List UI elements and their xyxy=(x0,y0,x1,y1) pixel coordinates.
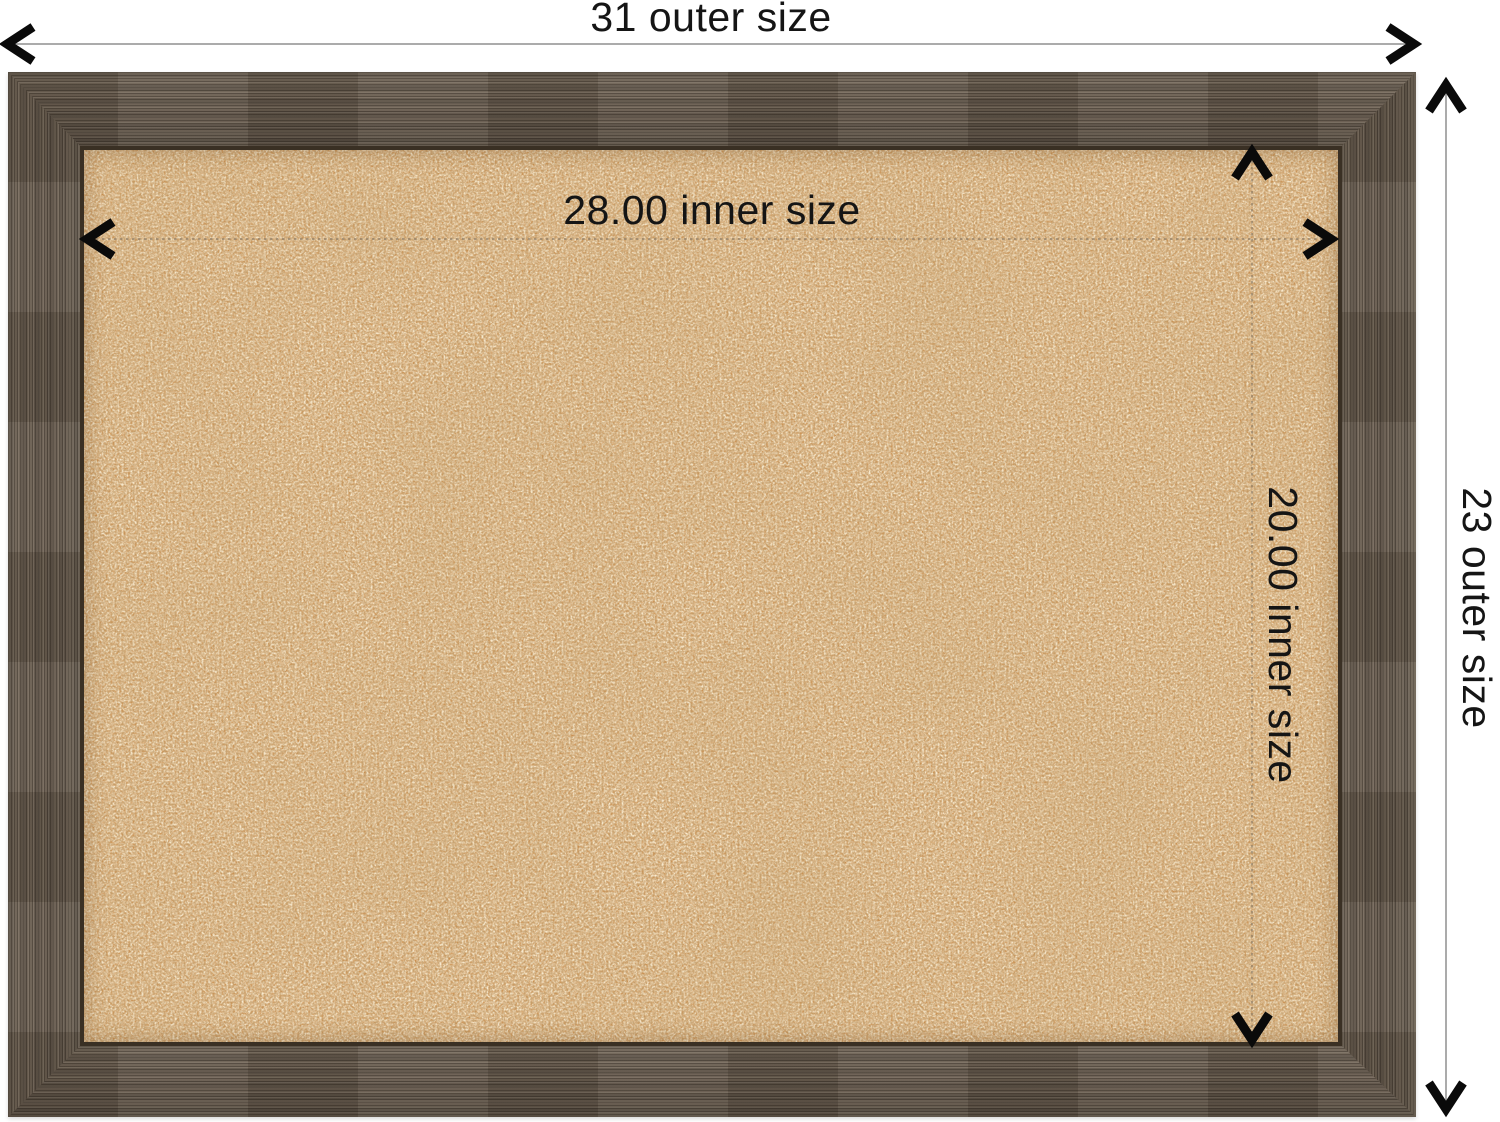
outer-width-label: 31 outer size xyxy=(590,0,831,41)
outer-height-label: 23 outer size xyxy=(1453,487,1499,728)
inner-width-label: 28.00 inner size xyxy=(563,188,860,234)
frame-top-rail xyxy=(8,72,1416,150)
cork-texture xyxy=(84,150,1338,1042)
frame-left-rail xyxy=(8,72,84,1117)
frame-bottom-rail xyxy=(8,1042,1416,1117)
chevron-up-icon xyxy=(1429,85,1463,111)
chevron-left-icon xyxy=(7,27,33,61)
cork-surface xyxy=(80,146,1342,1046)
chevron-down-icon xyxy=(1429,1083,1463,1109)
chevron-right-icon xyxy=(1388,27,1414,61)
frame-right-rail xyxy=(1338,72,1416,1117)
corkboard-dimension-diagram: 31 outer size 28.00 inner size 23 outer … xyxy=(0,0,1500,1122)
inner-height-label: 20.00 inner size xyxy=(1259,486,1305,783)
